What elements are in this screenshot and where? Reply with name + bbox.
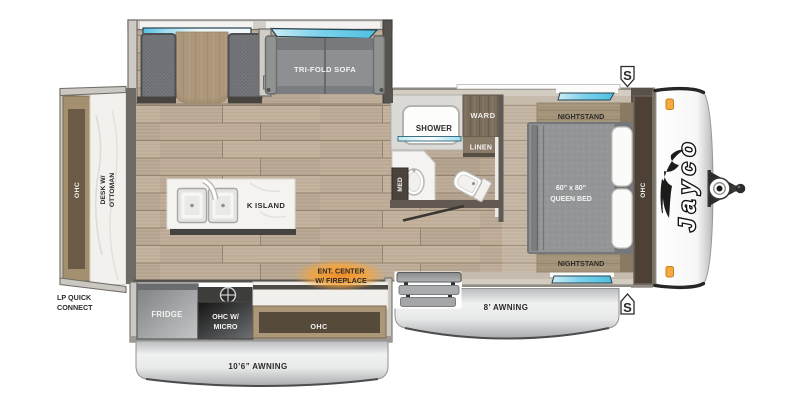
- svg-text:OHC: OHC: [74, 182, 81, 198]
- svg-text:TRI-FOLD SOFA: TRI-FOLD SOFA: [294, 65, 356, 74]
- svg-text:OHC: OHC: [310, 322, 327, 331]
- svg-text:60” x 80”: 60” x 80”: [556, 185, 586, 192]
- svg-text:8’ AWNING: 8’ AWNING: [484, 303, 529, 312]
- svg-text:K ISLAND: K ISLAND: [247, 201, 285, 210]
- svg-text:MED: MED: [397, 177, 404, 192]
- svg-text:DESK W/: DESK W/: [100, 175, 107, 204]
- svg-text:QUEEN BED: QUEEN BED: [550, 196, 592, 203]
- svg-text:FRIDGE: FRIDGE: [151, 310, 182, 319]
- svg-text:NIGHTSTAND: NIGHTSTAND: [558, 112, 605, 121]
- svg-text:OHC W/: OHC W/: [212, 312, 239, 321]
- svg-text:MICRO: MICRO: [214, 322, 238, 331]
- svg-text:S: S: [623, 68, 632, 83]
- svg-text:10’6” AWNING: 10’6” AWNING: [228, 362, 287, 371]
- svg-text:LINEN: LINEN: [470, 145, 493, 152]
- svg-text:LP QUICK: LP QUICK: [57, 293, 92, 302]
- svg-text:OHC: OHC: [640, 182, 647, 197]
- svg-text:WARD: WARD: [470, 111, 495, 120]
- svg-text:S: S: [623, 300, 632, 315]
- svg-text:SHOWER: SHOWER: [416, 124, 452, 133]
- svg-text:NIGHTSTAND: NIGHTSTAND: [558, 259, 605, 268]
- svg-text:W/ FIREPLACE: W/ FIREPLACE: [315, 276, 367, 285]
- svg-text:OTTOMAN: OTTOMAN: [109, 173, 116, 207]
- svg-text:CONNECT: CONNECT: [57, 303, 93, 312]
- svg-text:ENT. CENTER: ENT. CENTER: [317, 267, 365, 276]
